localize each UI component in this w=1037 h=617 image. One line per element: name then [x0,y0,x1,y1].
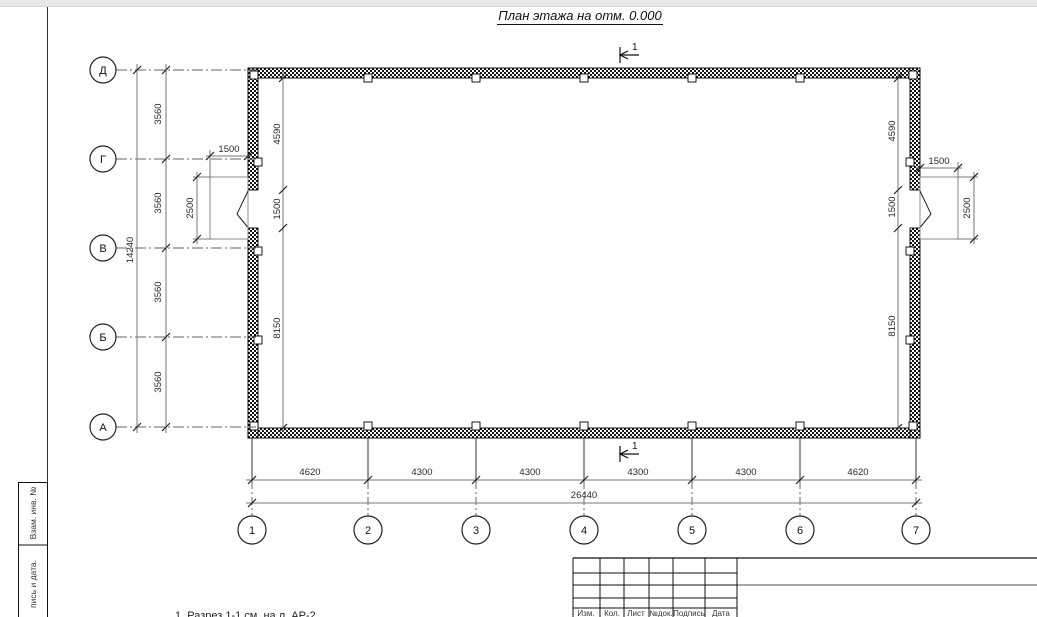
title-block-header: Изм. [577,609,594,617]
dim-col-spacing: 4300 [735,467,756,478]
axis-label-row: Д [99,65,107,77]
stamp-field-vzam-inv: Взам. инв. № [28,487,38,540]
dim-left-wall: 4590 [272,123,283,144]
dim-row-total: 14240 [125,237,136,263]
interior-dimension-left: 4590 1500 8150 [272,70,287,432]
dim-right-wall: 8150 [887,315,898,336]
dim-porch-width-right: 1500 [928,156,949,167]
dim-col-spacing: 4300 [627,467,648,478]
title-block: Изм. Кол. Лист №док. Подпись Дата [573,558,1037,617]
axis-label-col: 2 [365,525,371,537]
dim-right-wall: 1500 [887,196,898,217]
floor-plan-drawing: Взам. инв. № пись и дата. План этажа на … [0,0,1037,617]
dim-row-spacing: 3560 [153,192,164,213]
title-block-header: Подпись [673,609,705,617]
col-axes: 1 2 3 4 5 6 7 [238,516,930,544]
title-block-header: Дата [712,609,730,617]
dim-porch-depth-left: 2500 [185,197,196,218]
door-leaf-left [237,191,248,227]
dim-row-spacing: 3560 [153,281,164,302]
entrance-porches [210,177,958,239]
drawing-note: 1. Разрез 1-1 см. на л. АР-2 [175,610,316,617]
dim-left-wall: 8150 [272,317,283,338]
axis-label-row: Г [100,154,106,166]
dim-porch-width-left: 1500 [218,144,239,155]
axis-label-row: В [99,243,106,255]
wall-pilasters [250,71,917,430]
dim-col-spacing: 4620 [847,467,868,478]
drawing-sheet: Взам. инв. № пись и дата. План этажа на … [0,0,1037,617]
title-block-header: Лист [627,609,645,617]
title-block-header: Кол. [604,609,620,617]
axis-label-row: А [99,422,107,434]
dim-row-spacing: 3560 [153,371,164,392]
title-block-header: №док. [649,609,672,617]
door-leaves [237,191,931,227]
porch-dimensions-right: 1500 2500 [916,156,978,244]
bottom-dimensions: 4620 4300 4300 4300 4300 4620 26440 [246,438,922,516]
axis-label-col: 4 [581,525,587,537]
row-axes: Д Г В Б А [90,57,256,440]
axis-label-col: 3 [473,525,479,537]
dim-row-spacing: 3560 [153,103,164,124]
dim-col-spacing: 4620 [299,467,320,478]
dim-right-wall: 4590 [887,120,898,141]
dim-left-wall: 1500 [272,198,283,219]
dim-col-total: 26440 [571,490,597,501]
dim-col-spacing: 4300 [411,467,432,478]
interior-dimension-right: 4590 1500 8150 [887,70,902,432]
dim-porch-depth-right: 2500 [962,197,973,218]
section-mark-label: 1 [632,441,638,452]
axis-label-col: 6 [797,525,803,537]
drawing-title: План этажа на отм. 0.000 [498,8,662,23]
axis-label-col: 7 [913,525,919,537]
axis-label-row: Б [99,332,106,344]
dim-col-spacing: 4300 [519,467,540,478]
walls [248,68,920,438]
stamp-field-podpis-data: пись и дата. [28,560,38,608]
axis-label-col: 5 [689,525,695,537]
door-leaf-right [920,191,931,227]
section-mark-label: 1 [632,42,638,53]
axis-label-col: 1 [249,525,255,537]
